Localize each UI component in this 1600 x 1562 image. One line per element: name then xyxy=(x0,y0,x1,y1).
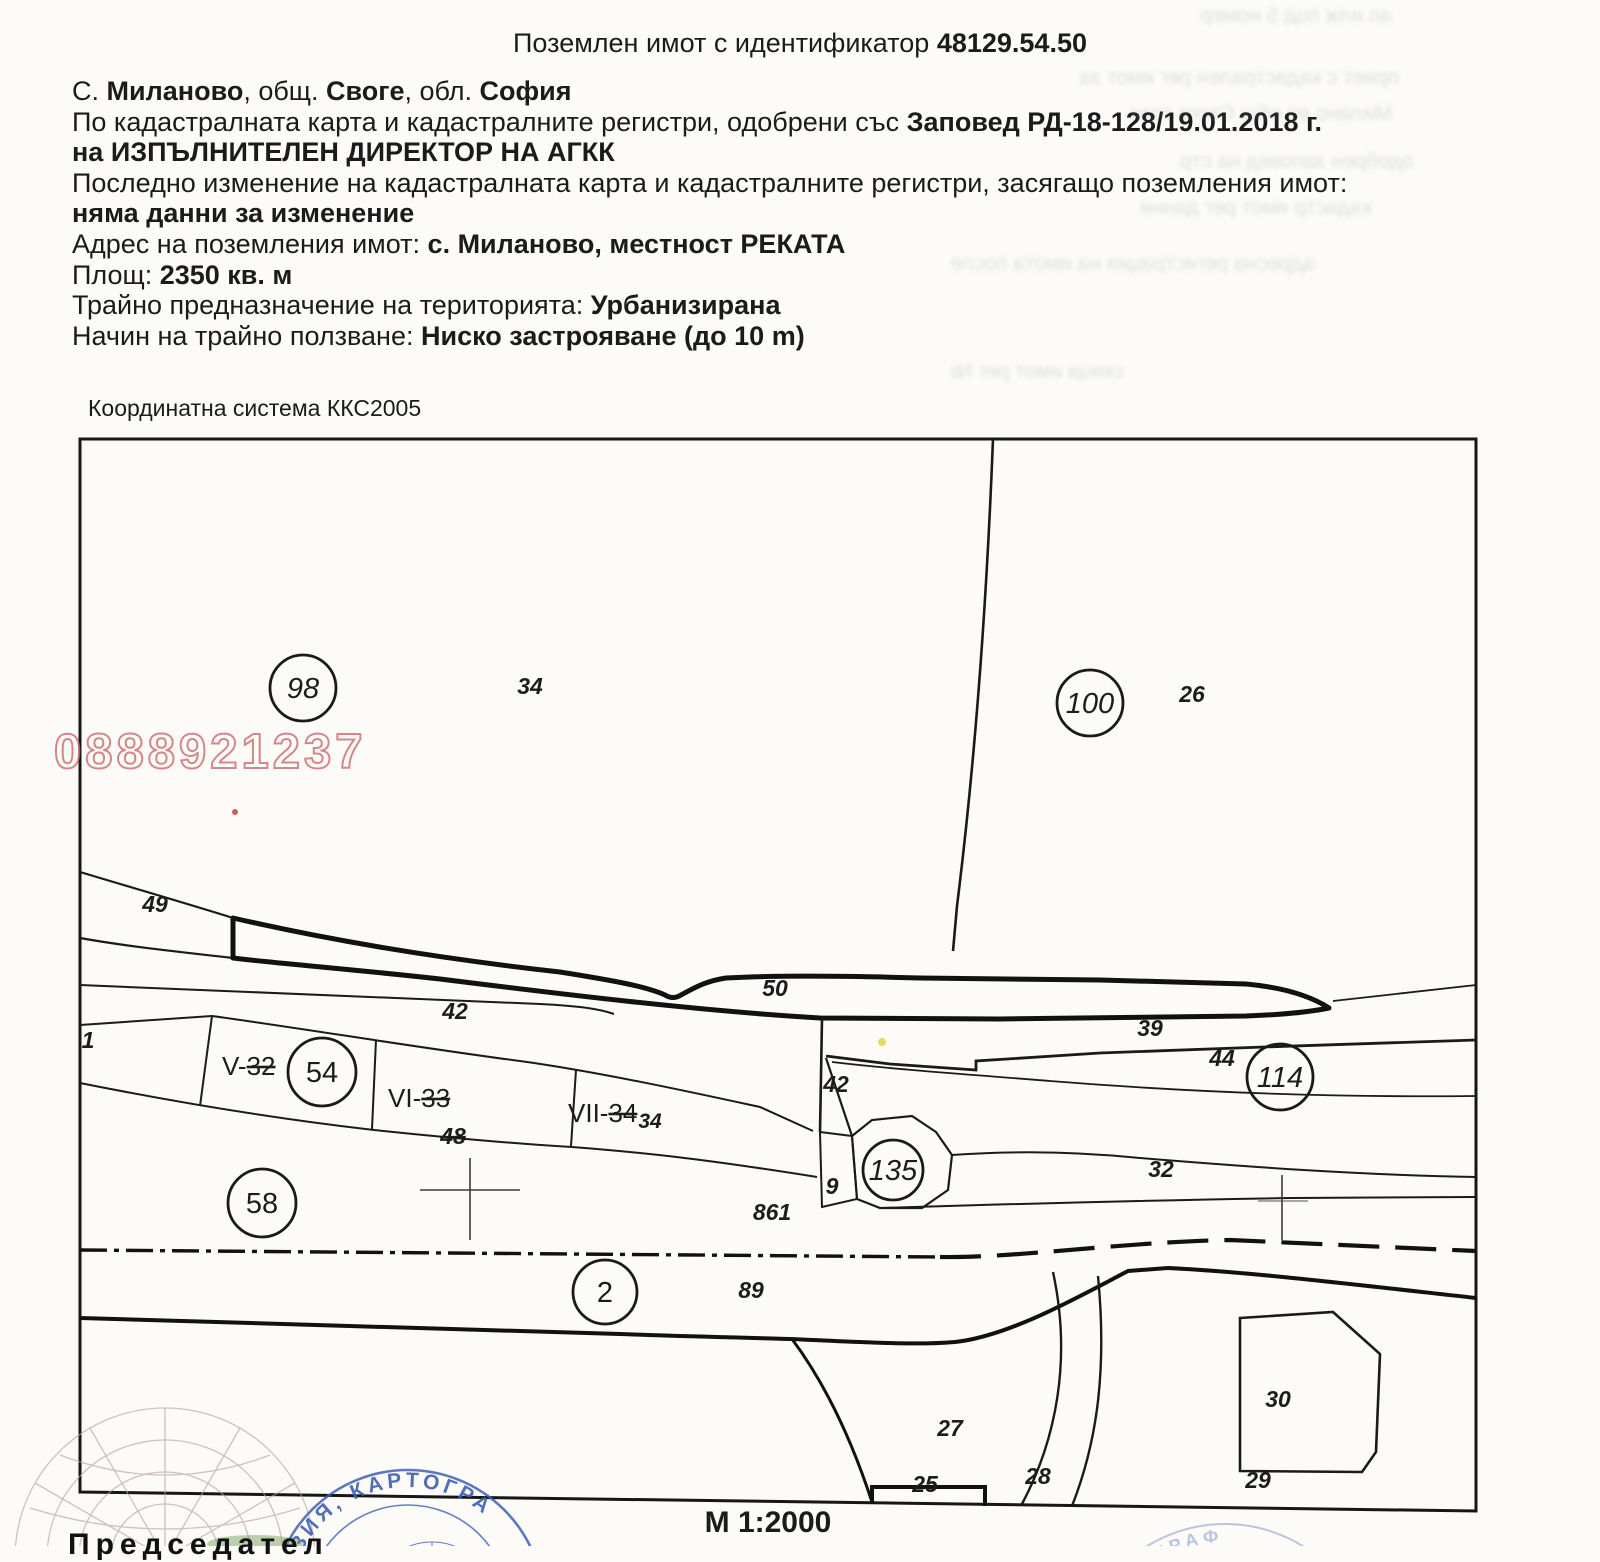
permanent-use-line: Начин на трайно ползване: Ниско застрояв… xyxy=(72,321,1472,352)
label-9: 9 xyxy=(826,1173,839,1199)
axis-dashed xyxy=(940,1240,1476,1257)
red-speck xyxy=(232,809,238,815)
label-48-struck: 48 xyxy=(439,1123,466,1149)
bleed-through-text: приет с кадастрален рег имот за xyxy=(1080,66,1399,90)
parcel-number-100: 100 xyxy=(1066,688,1114,720)
blue-globe-wireframe xyxy=(368,1542,496,1546)
label-25: 25 xyxy=(911,1471,939,1497)
label-42-vertical: 42 xyxy=(822,1071,849,1097)
boundary-44 xyxy=(826,1040,1476,1070)
river-line xyxy=(80,1268,1476,1343)
svg-text:КАРТОГРАФ: КАРТОГРАФ xyxy=(1089,1526,1224,1546)
survey-cross-right xyxy=(1258,1175,1308,1240)
label-39: 39 xyxy=(1137,1015,1163,1041)
label-29: 29 xyxy=(1244,1467,1271,1493)
watermark-phone-number: 0888921237 xyxy=(54,724,367,780)
label-50: 50 xyxy=(762,975,788,1001)
plot-label-vi33: VI-33 xyxy=(388,1083,450,1113)
bottom-left-text-fragment: Председател xyxy=(68,1528,329,1562)
territory-use-line: Трайно предназначение на територията: Ур… xyxy=(72,290,1472,321)
label-44: 44 xyxy=(1208,1045,1235,1071)
strip-32-bottom xyxy=(880,1197,1476,1208)
boundary-right-of-tip xyxy=(1333,985,1476,1001)
parcel-number-2: 2 xyxy=(597,1277,613,1309)
label-30: 30 xyxy=(1265,1386,1291,1412)
label-32: 32 xyxy=(1148,1156,1174,1182)
axis-dashdot xyxy=(80,1250,940,1257)
property-identifier: 48129.54.50 xyxy=(937,28,1087,58)
label-27: 27 xyxy=(936,1415,964,1441)
yellow-speck xyxy=(878,1038,886,1046)
document-title: Поземлен имот с идентификатор 48129.54.5… xyxy=(0,28,1600,59)
bleed-through-text: одобрен заповед на стр xyxy=(1180,150,1413,174)
parcel-number-58: 58 xyxy=(246,1188,278,1220)
purple-globe-radials xyxy=(15,1408,315,1546)
label-89: 89 xyxy=(738,1277,764,1303)
label-28: 28 xyxy=(1024,1463,1051,1489)
parcel-28-east xyxy=(1072,1276,1101,1506)
parcel-27-west xyxy=(792,1339,872,1502)
purple-globe-stamp xyxy=(15,1408,315,1546)
parcel-number-54: 54 xyxy=(306,1057,338,1089)
road-42v-west xyxy=(820,1019,822,1132)
map-scale-label: М 1:2000 xyxy=(618,1506,918,1540)
subject-parcel-boundary xyxy=(233,918,1329,1019)
survey-cross-left xyxy=(420,1158,520,1240)
bleed-through-text: адресна регистрация на имота после xyxy=(950,252,1315,276)
label-861: 861 xyxy=(753,1199,791,1225)
divider-1-v32 xyxy=(200,1016,212,1106)
road-42v-east xyxy=(826,1058,852,1136)
coordinate-system-label: Координатна система ККС2005 xyxy=(88,395,421,422)
boundary-49-bottom xyxy=(80,938,233,958)
label-34: 34 xyxy=(517,673,543,699)
label-42-road: 42 xyxy=(441,998,468,1024)
parcels-top-line xyxy=(80,1016,813,1131)
scanned-cadastral-sketch: { "header": { "title_prefix": "Поземлен … xyxy=(0,0,1600,1546)
plot-label-v32: V-32 xyxy=(222,1051,276,1081)
bleed-through-text: скица имот рег № xyxy=(950,360,1123,384)
label-26: 26 xyxy=(1178,681,1205,707)
right-stamp-arc-text: КАРТОГРАФ xyxy=(1089,1526,1224,1546)
right-blue-arc-stamp: КАРТОГРАФ xyxy=(1077,1524,1373,1546)
title-prefix: Поземлен имот с идентификатор xyxy=(513,28,937,58)
bleed-through-text: кадастр имот рег данни xyxy=(1140,196,1371,220)
bleed-through-text: Милано во общ Своге този xyxy=(1130,102,1392,126)
parcel-number-114: 114 xyxy=(1257,1062,1303,1094)
divider-v32-vi33 xyxy=(372,1040,376,1129)
bleed-through-text: ап илж под 5 номер xyxy=(1200,4,1392,28)
parcel-number-135: 135 xyxy=(869,1155,918,1187)
plot-label-vii34: VII-34 xyxy=(568,1098,637,1128)
label-34-small: 34 xyxy=(638,1110,662,1133)
label-1: 1 xyxy=(82,1027,95,1053)
parcel-number-98: 98 xyxy=(287,673,319,705)
boundary-34-26 xyxy=(953,439,993,951)
parcel-30-boundary xyxy=(1240,1312,1380,1472)
label-49: 49 xyxy=(141,891,168,917)
strip-32-top xyxy=(952,1152,1476,1177)
